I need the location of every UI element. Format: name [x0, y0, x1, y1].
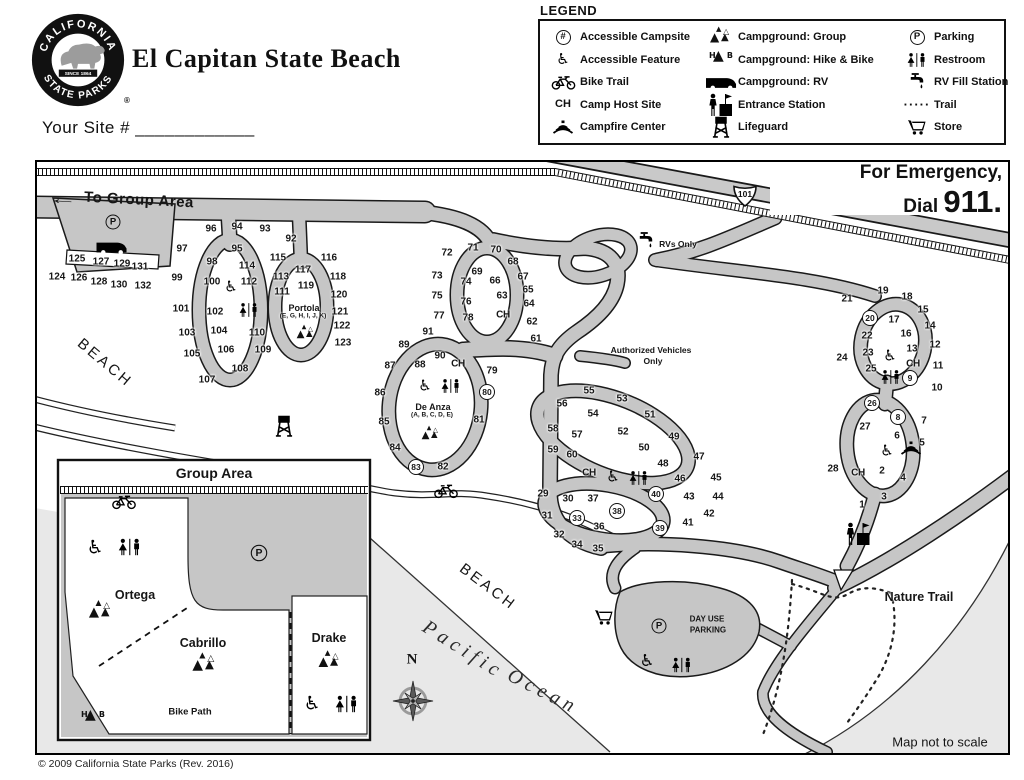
wheelchair-icon: ♿ [640, 653, 655, 670]
site-124: 124 [49, 272, 66, 283]
tents-marker: ▲△▲▲ [297, 327, 316, 341]
campground-group-icon: ▲△▲▲ [297, 327, 316, 341]
site-14: 14 [924, 321, 935, 332]
el-capitan-map-page: CALIFORNIA STATE PARKS SINCE 1864 ® El C… [0, 0, 1024, 780]
legend-label: Camp Host Site [580, 99, 661, 111]
site-90: 90 [434, 351, 445, 362]
wheelchair-marker: ♿ [640, 653, 655, 670]
site-8: 8 [890, 409, 906, 425]
entrance-marker [846, 522, 873, 546]
site-112: 112 [241, 277, 257, 288]
site-84: 84 [389, 443, 400, 454]
shield-marker: 101 [732, 185, 758, 208]
site-45: 45 [710, 473, 721, 484]
wheelchair-icon: ♿ [606, 470, 619, 485]
site-58: 58 [547, 424, 558, 435]
legend: #Accessible Campsite♿Accessible Feature … [538, 19, 1006, 145]
restroom-icon [117, 539, 143, 556]
site-24: 24 [836, 353, 847, 364]
site-57: 57 [571, 430, 582, 441]
site-6: 6 [894, 431, 900, 442]
parking-icon: P [652, 619, 667, 634]
site-26: 26 [864, 395, 880, 411]
site-131: 131 [132, 262, 149, 273]
site-119: 119 [298, 281, 314, 292]
wheelchair-icon: ♿ [418, 379, 431, 394]
site-103: 103 [179, 328, 196, 339]
legend-item-accessible-campsite: #Accessible Campsite [546, 26, 704, 48]
site-21: 21 [841, 294, 852, 305]
site-72: 72 [441, 248, 452, 259]
wheelchair-icon: ♿ [883, 349, 896, 364]
label-ortega: Ortega [115, 588, 155, 602]
site-20: 20 [862, 310, 878, 326]
site-30: 30 [562, 494, 573, 505]
legend-column: ▲△▲▲ Campground: Group H▲B Campground: H… [704, 26, 900, 138]
legend-item-lifeguard: Lifeguard [704, 116, 900, 138]
site-65: 65 [522, 285, 533, 296]
site-126: 126 [71, 273, 88, 284]
legend-label: Bike Trail [580, 76, 629, 88]
restroom-icon [238, 303, 260, 317]
label-to-group-area: To Group Area [84, 189, 195, 212]
legend-item-bike-trail: Bike Trail [546, 71, 704, 93]
site-116: 116 [321, 253, 337, 264]
site-54: 54 [587, 409, 598, 420]
legend-title: LEGEND [540, 3, 597, 18]
site-78: 78 [462, 313, 473, 324]
site-110: 110 [249, 328, 265, 339]
site-125: 125 [69, 254, 86, 265]
camp-host-label: CH [496, 310, 510, 321]
pcircle-marker: P [251, 545, 268, 562]
legend-label: Campground: Group [738, 31, 846, 43]
legend-item-entrance-station: Entrance Station [704, 94, 900, 116]
label-drake: Drake [312, 631, 347, 645]
site-130: 130 [111, 280, 128, 291]
site-68: 68 [507, 257, 518, 268]
restroom-marker [628, 471, 650, 485]
page-title: El Capitan State Beach [132, 44, 401, 74]
site-64: 64 [523, 299, 534, 310]
compass-rose-icon [392, 679, 434, 723]
site-27: 27 [859, 422, 870, 433]
site-108: 108 [232, 364, 249, 375]
wheelchair-icon: ♿ [880, 444, 893, 459]
site-69: 69 [471, 267, 482, 278]
restroom-icon [334, 696, 360, 713]
site-74: 74 [460, 277, 471, 288]
svg-text:SINCE 1864: SINCE 1864 [65, 71, 92, 77]
legend-label: Entrance Station [738, 99, 825, 111]
legend-label: Parking [934, 31, 974, 43]
site-17: 17 [888, 315, 899, 326]
site-102: 102 [207, 307, 224, 318]
site-106: 106 [218, 345, 235, 356]
site-123: 123 [335, 338, 352, 349]
site-11: 11 [933, 361, 944, 372]
site-105: 105 [184, 349, 201, 360]
wheelchair-marker: ♿ [224, 280, 237, 295]
site-93: 93 [259, 224, 270, 235]
site-43: 43 [683, 492, 694, 503]
legend-item-campground-rv: Campground: RV [704, 71, 900, 93]
legend-label: Restroom [934, 54, 985, 66]
legend-item-campground-hike-bike: H▲B Campground: Hike & Bike [704, 49, 900, 71]
parking-icon: P [106, 215, 121, 230]
site-49: 49 [668, 432, 679, 443]
site-22: 22 [861, 331, 872, 342]
site-59: 59 [547, 445, 558, 456]
site-47: 47 [693, 452, 704, 463]
site-120: 120 [331, 290, 348, 301]
legend-label: RV Fill Station [934, 76, 1008, 88]
site-87: 87 [384, 361, 395, 372]
california-state-parks-logo: CALIFORNIA STATE PARKS SINCE 1864 [30, 12, 126, 108]
your-site-number: Your Site # ____________ [42, 118, 255, 138]
bike-marker [112, 495, 137, 510]
site-33: 33 [569, 510, 585, 526]
rv-marker [97, 240, 128, 255]
label-only: Only [644, 356, 663, 366]
site-1: 1 [859, 500, 865, 511]
site-9: 9 [902, 370, 918, 386]
campfire-center-icon [552, 120, 574, 134]
label-parking: PARKING [690, 626, 726, 635]
legend-item-rv-fill-station: RV Fill Station [900, 71, 1006, 93]
legend-item-store: Store [900, 116, 1006, 138]
bike-icon [434, 484, 459, 499]
site-3: 3 [881, 492, 887, 503]
site-129: 129 [114, 259, 131, 270]
restroom-marker [880, 370, 902, 384]
legend-label: Campfire Center [580, 121, 666, 133]
tents-marker: ▲△▲▲ [422, 428, 441, 442]
bike-marker [434, 484, 459, 499]
camp-host-icon: CH [555, 99, 571, 110]
camp-host-label: CH [582, 468, 596, 479]
site-86: 86 [374, 388, 385, 399]
site-98: 98 [206, 257, 217, 268]
site-113: 113 [273, 272, 289, 283]
site-52: 52 [617, 427, 628, 438]
wheelchair-icon: ♿ [87, 539, 104, 558]
site-51: 51 [644, 410, 655, 421]
legend-item-campground-group: ▲△▲▲ Campground: Group [704, 26, 900, 48]
site-77: 77 [433, 311, 444, 322]
legend-item-accessible-feature: ♿Accessible Feature [546, 49, 704, 71]
site-127: 127 [93, 257, 110, 268]
label-beach: BEACH [456, 560, 519, 614]
accessible-campsite-icon: # [556, 30, 571, 45]
wheelchair-marker: ♿ [606, 470, 619, 485]
label-n: N [407, 652, 418, 669]
restroom-icon [906, 53, 928, 67]
site-132: 132 [135, 281, 152, 292]
campground-rv-icon [97, 240, 128, 255]
site-82: 82 [437, 462, 448, 473]
bike-icon [112, 495, 137, 510]
site-94: 94 [231, 222, 242, 233]
legend-label: Trail [934, 99, 957, 111]
label-map-not-to-scale: Map not to scale [892, 735, 987, 750]
label-day-use: DAY USE [690, 615, 725, 624]
camp-host-label: CH [451, 359, 465, 370]
site-100: 100 [204, 277, 221, 288]
site-41: 41 [682, 518, 693, 529]
site-44: 44 [712, 492, 723, 503]
site-46: 46 [674, 474, 685, 485]
campground-group-icon: ▲△▲▲ [422, 428, 441, 442]
site-53: 53 [616, 394, 627, 405]
tents-marker: ▲△▲▲ [89, 603, 113, 622]
campfire-marker [900, 441, 922, 455]
legend-label: Accessible Feature [580, 54, 680, 66]
label-de-anza: De Anza [415, 402, 450, 412]
site-61: 61 [530, 334, 541, 345]
label-pacific: Pacific [418, 616, 508, 684]
site-25: 25 [865, 364, 876, 375]
site-15: 15 [917, 305, 928, 316]
site-88: 88 [414, 360, 425, 371]
restroom-marker [334, 696, 360, 713]
hike-bike-icon: H▲B [81, 711, 105, 727]
site-111: 111 [274, 287, 290, 298]
cart-marker [595, 609, 613, 625]
site-50: 50 [638, 443, 649, 454]
site-39: 39 [652, 520, 668, 536]
parking-icon: P [251, 545, 268, 562]
site-19: 19 [877, 286, 888, 297]
store-icon [908, 119, 926, 135]
svg-text:101: 101 [738, 189, 752, 199]
site-28: 28 [827, 464, 838, 475]
site-13: 13 [906, 344, 917, 355]
legend-column: #Accessible Campsite♿Accessible Feature … [546, 26, 704, 138]
restroom-marker [670, 658, 693, 673]
label-nature-trail: Nature Trail [885, 590, 954, 604]
site-56: 56 [556, 399, 567, 410]
faucet-marker [638, 232, 654, 250]
site-121: 121 [332, 307, 349, 318]
site-99: 99 [171, 273, 182, 284]
legend-label: Campground: RV [738, 76, 828, 88]
campground-map: For Emergency, Dial 911. 123456789101112… [35, 160, 1010, 755]
site-63: 63 [496, 291, 507, 302]
site-10: 10 [931, 383, 942, 394]
label-group-area: Group Area [176, 465, 253, 481]
site-80: 80 [479, 384, 495, 400]
hab-marker: H▲B [81, 711, 105, 727]
site-96: 96 [205, 224, 216, 235]
legend-item-campfire-center: Campfire Center [546, 116, 704, 138]
entrance-station-icon [708, 93, 735, 117]
site-81: 81 [473, 415, 484, 426]
site-89: 89 [398, 340, 409, 351]
store-icon [595, 609, 613, 625]
site-2: 2 [879, 466, 885, 477]
site-91: 91 [422, 327, 433, 338]
restroom-icon [880, 370, 902, 384]
camp-host-label: CH [851, 468, 865, 479]
site-66: 66 [489, 276, 500, 287]
label-cabrillo: Cabrillo [180, 636, 227, 650]
site-35: 35 [592, 544, 603, 555]
entrance-station-icon [846, 522, 873, 546]
site-109: 109 [255, 345, 272, 356]
site-48: 48 [657, 459, 668, 470]
arrow-left-icon: ← [55, 191, 72, 210]
label-rvs-only: RVs Only [659, 239, 697, 249]
site-55: 55 [583, 386, 594, 397]
hike-bike-icon: H▲B [709, 52, 733, 68]
campground-group-icon: ▲△▲▲ [89, 603, 113, 622]
site-118: 118 [330, 272, 346, 283]
site-85: 85 [378, 417, 389, 428]
campground-rv-icon [706, 75, 737, 90]
rv-fill-station-icon [909, 73, 925, 91]
label-a-b-c-d-e: (A, B, C, D, E) [411, 412, 453, 419]
lifeguard-marker [275, 415, 293, 437]
site-4: 4 [900, 473, 906, 484]
legend-label: Accessible Campsite [580, 31, 690, 43]
site-29: 29 [537, 489, 548, 500]
site-114: 114 [239, 261, 255, 272]
site-70: 70 [490, 245, 501, 256]
wheelchair-marker: ♿ [87, 539, 104, 558]
site-23: 23 [862, 348, 873, 359]
pcircle-marker: P [106, 215, 121, 230]
lifeguard-icon [275, 415, 293, 437]
site-76: 76 [460, 297, 471, 308]
restroom-marker [117, 539, 143, 556]
legend-label: Lifeguard [738, 121, 788, 133]
parking-icon: P [910, 30, 925, 45]
legend-label: Store [934, 121, 962, 133]
site-79: 79 [486, 366, 497, 377]
campground-group-icon: ▲△▲▲ [192, 655, 217, 675]
trail-icon: ····· [904, 98, 931, 111]
site-92: 92 [285, 234, 296, 245]
campfire-center-icon [900, 441, 922, 455]
tents-marker: ▲△▲▲ [192, 655, 217, 675]
campground-group-icon: ▲△▲▲ [710, 29, 732, 46]
legend-item-camp-host-site: CHCamp Host Site [546, 94, 704, 116]
restroom-icon [440, 379, 462, 393]
wheelchair-icon: ♿ [304, 695, 321, 714]
legend-column: PParking Restroom RV Fill Station·····Tr… [900, 26, 1006, 138]
rv-fill-station-icon [638, 232, 654, 250]
copyright-line: © 2009 California State Parks (Rev. 2016… [38, 758, 233, 770]
site-117: 117 [295, 265, 311, 276]
map-points-layer: 1234567891011121314151617181920212223242… [35, 160, 1010, 755]
restroom-icon [628, 471, 650, 485]
site-12: 12 [929, 340, 940, 351]
label-e-g-h-i-j-k: (E, G, H, I, J, K) [280, 313, 327, 320]
site-37: 37 [587, 494, 598, 505]
site-16: 16 [900, 329, 911, 340]
site-38: 38 [609, 503, 625, 519]
label-beach: BEACH [74, 335, 136, 391]
lifeguard-icon [712, 116, 730, 138]
site-73: 73 [431, 271, 442, 282]
site-42: 42 [703, 509, 714, 520]
pcircle-marker: P [652, 619, 667, 634]
site-62: 62 [526, 317, 537, 328]
site-71: 71 [467, 243, 478, 254]
site-83: 83 [408, 459, 424, 475]
site-34: 34 [571, 540, 582, 551]
legend-item-trail: ·····Trail [900, 94, 1006, 116]
wheelchair-marker: ♿ [304, 695, 321, 714]
site-95: 95 [231, 244, 242, 255]
site-97: 97 [176, 244, 187, 255]
site-18: 18 [901, 292, 912, 303]
wheelchair-marker: ♿ [880, 444, 893, 459]
highway-101-shield-icon: 101 [732, 185, 758, 208]
wheelchair-marker: ♿ [418, 379, 431, 394]
label-portola: Portola [288, 303, 319, 313]
site-128: 128 [91, 277, 108, 288]
camp-host-label: CH [906, 359, 920, 370]
site-60: 60 [566, 450, 577, 461]
registered-mark: ® [124, 96, 130, 105]
wheelchair-icon: ♿ [224, 280, 237, 295]
site-7: 7 [921, 416, 927, 427]
label-authorized-vehicles: Authorized Vehicles [611, 345, 692, 355]
site-115: 115 [270, 253, 286, 264]
legend-item-parking: PParking [900, 26, 1006, 48]
wheelchair-icon: ♿ [556, 52, 569, 67]
campground-group-icon: ▲△▲▲ [318, 653, 341, 671]
restroom-marker [440, 379, 462, 393]
site-31: 31 [541, 511, 552, 522]
compass-marker [392, 679, 434, 723]
label-bike-path: Bike Path [168, 707, 211, 718]
site-101: 101 [173, 304, 190, 315]
site-32: 32 [553, 530, 564, 541]
restroom-icon [670, 658, 693, 673]
legend-item-restroom: Restroom [900, 49, 1006, 71]
wheelchair-marker: ♿ [883, 349, 896, 364]
label-ocean: Ocean [503, 664, 582, 720]
site-75: 75 [431, 291, 442, 302]
site-67: 67 [517, 272, 528, 283]
site-36: 36 [593, 522, 604, 533]
site-107: 107 [199, 375, 216, 386]
tents-marker: ▲△▲▲ [318, 653, 341, 671]
site-40: 40 [648, 486, 664, 502]
site-104: 104 [211, 326, 228, 337]
legend-label: Campground: Hike & Bike [738, 54, 874, 66]
bike-icon [551, 75, 576, 90]
site-122: 122 [334, 321, 351, 332]
restroom-marker [238, 303, 260, 317]
